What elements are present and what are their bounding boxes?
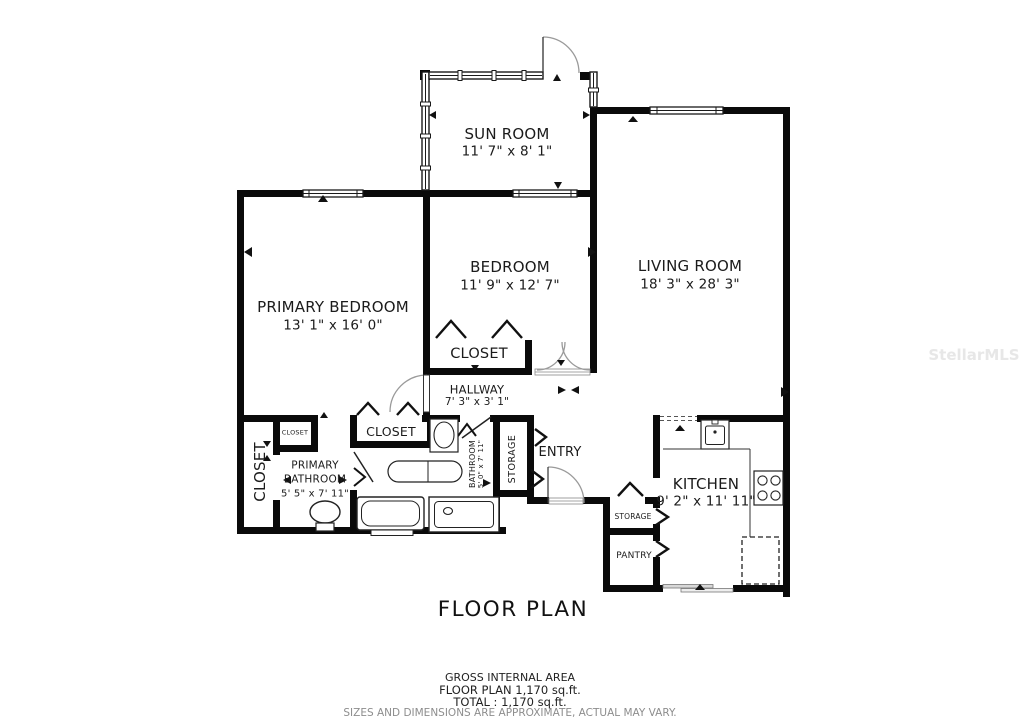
floor-plan-page: SUN ROOM 11' 7" x 8' 1" PRIMARY BEDROOM … [0, 0, 1024, 723]
bathroom-sink-fixture [430, 419, 458, 452]
hallway-dims: 7' 3" x 3' 1" [445, 397, 509, 409]
living-room-label: LIVING ROOM [638, 258, 742, 275]
middle-closet-label: CLOSET [366, 425, 416, 439]
bathtub-fixture [357, 497, 424, 536]
pantry-label: PANTRY [616, 552, 652, 562]
bathroom-vanity-fixture [388, 461, 462, 482]
kitchen-label: KITCHEN [673, 476, 739, 493]
bathroom-label-group: BATHROOM 5' 0" x 7' 11" [469, 440, 485, 488]
bedroom-dims: 11' 9" x 12' 7" [460, 279, 560, 294]
primary-bedroom-label: PRIMARY BEDROOM [257, 299, 409, 316]
stove-fixture [754, 471, 783, 505]
bathroom-dims: 5' 0" x 7' 11" [478, 440, 486, 488]
disclaimer-text: SIZES AND DIMENSIONS ARE APPROXIMATE, AC… [343, 707, 676, 719]
page-title: FLOOR PLAN [438, 598, 588, 622]
stellar-mls-watermark: StellarMLS [928, 346, 1019, 364]
primary-bathroom-label: PRIMARY BATHROOM [271, 459, 359, 486]
refrigerator-fixture [742, 537, 779, 584]
kitchen-dims: 9' 2" x 11' 11" [656, 495, 756, 510]
primary-bathroom-dims: 5' 5" x 7' 11" [281, 489, 349, 500]
small-closet-label: CLOSET [282, 429, 308, 436]
left-closet-label: CLOSET [252, 442, 269, 501]
primary-bedroom-dims: 13' 1" x 16' 0" [283, 319, 383, 334]
hall-storage-label: STORAGE [508, 435, 518, 484]
entry-label: ENTRY [538, 446, 581, 460]
shower-fixture [429, 497, 499, 532]
sun-room-dims: 11' 7" x 8' 1" [462, 145, 553, 160]
bedroom-label: BEDROOM [470, 259, 550, 276]
hallway-label: HALLWAY [450, 384, 504, 397]
kitchen-storage-label: STORAGE [614, 513, 651, 521]
toilet-fixture [310, 501, 340, 531]
living-room-dims: 18' 3" x 28' 3" [640, 278, 740, 293]
bedroom-closet-label: CLOSET [450, 347, 508, 363]
kitchen-pass-through [660, 417, 697, 421]
kitchen-sink-fixture [701, 420, 729, 449]
sun-room-label: SUN ROOM [464, 126, 549, 143]
